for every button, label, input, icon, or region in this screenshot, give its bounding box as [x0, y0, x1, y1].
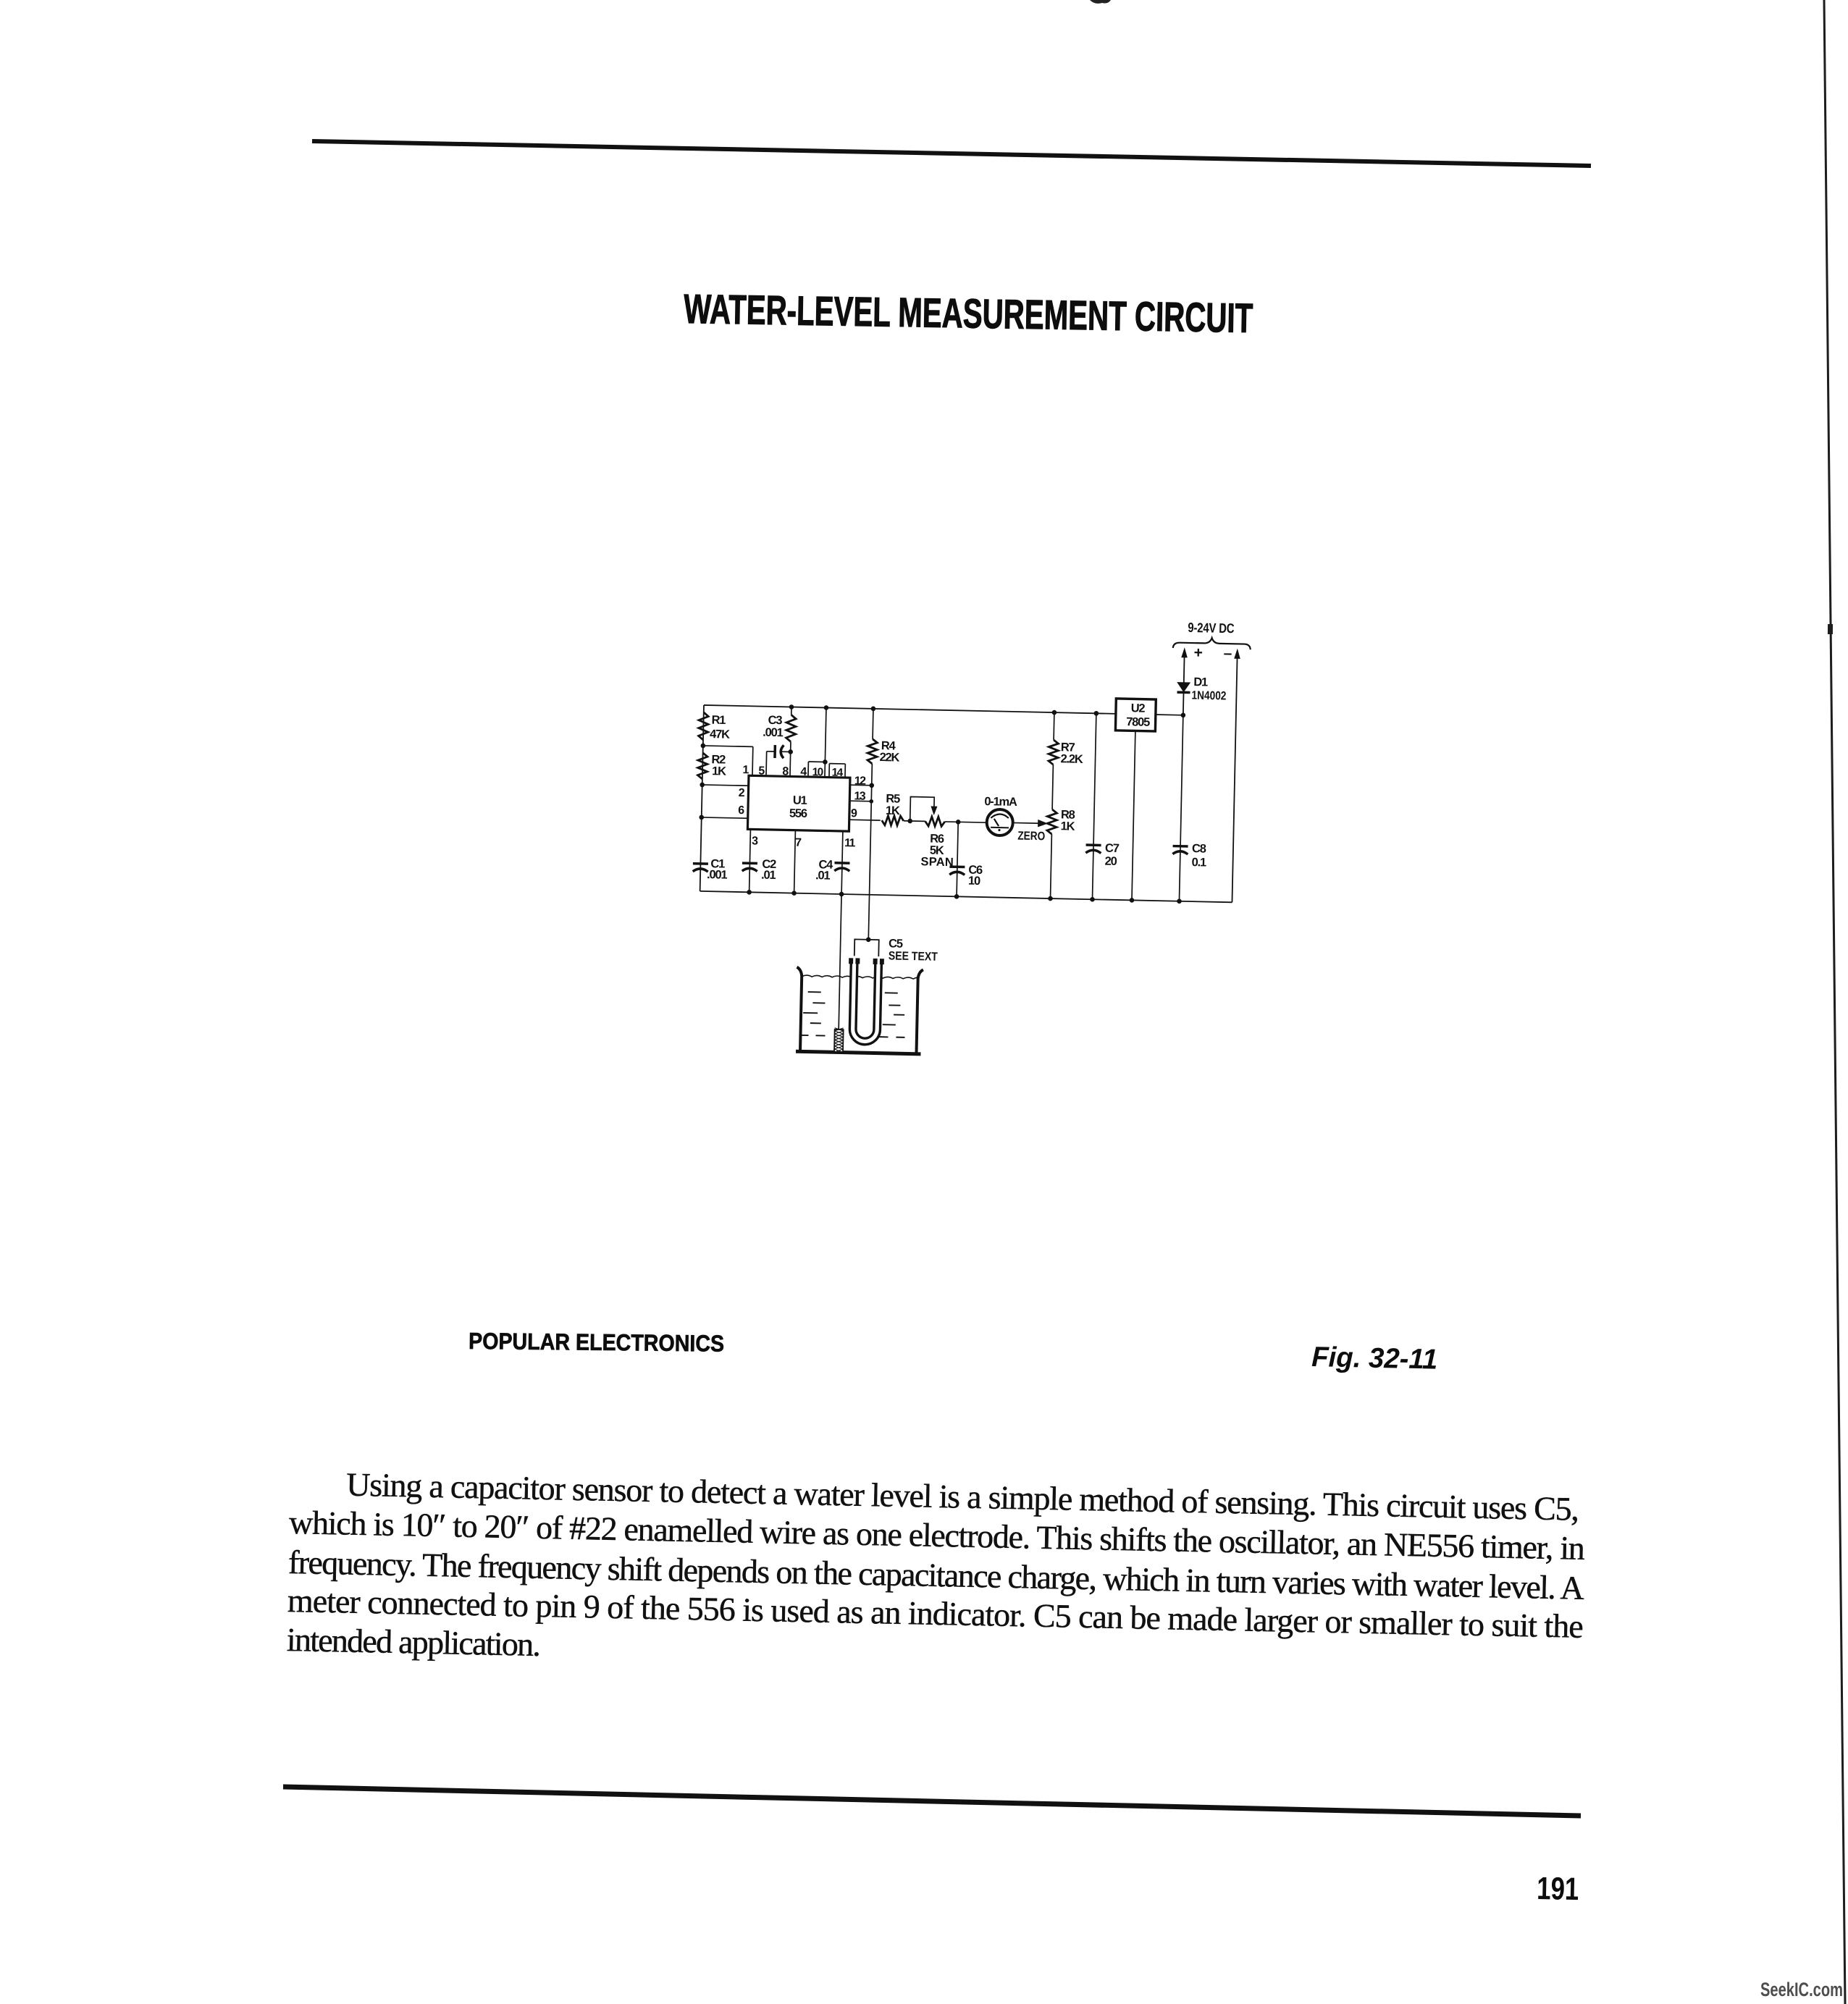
svg-text:POPULAR ELECTRONICS: POPULAR ELECTRONICS: [469, 1328, 724, 1357]
svg-text:1K: 1K: [886, 804, 900, 817]
svg-text:WATER-LEVEL MEASUREMENT CIRCUI: WATER-LEVEL MEASUREMENT CIRCUIT: [684, 286, 1253, 342]
svg-text:556: 556: [789, 807, 807, 820]
svg-text:9: 9: [851, 807, 857, 820]
svg-text:47K: 47K: [710, 728, 730, 741]
svg-text:191: 191: [1537, 1871, 1579, 1907]
svg-text:ZERO: ZERO: [1017, 830, 1045, 843]
svg-text:SeekIC.com: SeekIC.com: [1760, 1979, 1843, 2000]
svg-text:R1: R1: [711, 714, 726, 727]
svg-text:7805: 7805: [1126, 715, 1150, 729]
svg-text:D1: D1: [1193, 675, 1208, 689]
svg-text:SEE TEXT: SEE TEXT: [889, 949, 938, 963]
svg-text:1K: 1K: [712, 765, 726, 778]
svg-text:6: 6: [738, 804, 744, 817]
svg-text:20: 20: [1104, 855, 1117, 868]
svg-text:0-1mA: 0-1mA: [984, 795, 1017, 809]
svg-text:0.1: 0.1: [1191, 856, 1206, 869]
svg-text:10: 10: [968, 875, 980, 888]
svg-text:C5: C5: [889, 937, 903, 950]
svg-text:U2: U2: [1130, 702, 1145, 715]
svg-text:11: 11: [844, 837, 856, 849]
svg-text:.001: .001: [763, 726, 784, 740]
svg-text:C8: C8: [1192, 842, 1206, 855]
svg-text:intended application.: intended application.: [286, 1621, 541, 1663]
svg-text:.01: .01: [815, 869, 831, 882]
svg-text:7: 7: [795, 837, 802, 849]
svg-text:2.2K: 2.2K: [1060, 752, 1083, 766]
svg-text:C7: C7: [1105, 842, 1120, 855]
svg-text:1K: 1K: [1060, 820, 1075, 833]
svg-text:14: 14: [831, 767, 843, 779]
svg-text:.001: .001: [707, 868, 728, 882]
svg-text:C3: C3: [768, 714, 782, 727]
svg-text:U1: U1: [793, 794, 807, 807]
svg-text:.01: .01: [761, 869, 776, 882]
svg-text:Fig. 32-11: Fig. 32-11: [1311, 1342, 1438, 1376]
svg-text:9-24V DC: 9-24V DC: [1188, 620, 1234, 636]
svg-text:22K: 22K: [879, 751, 899, 765]
svg-text:+: +: [1193, 644, 1202, 661]
svg-text:SPAN: SPAN: [920, 855, 954, 869]
svg-text:1N4002: 1N4002: [1191, 689, 1226, 703]
svg-text:2: 2: [739, 787, 745, 799]
svg-text:3: 3: [752, 835, 758, 847]
svg-text:10: 10: [812, 766, 823, 778]
svg-text:–: –: [1223, 645, 1232, 662]
